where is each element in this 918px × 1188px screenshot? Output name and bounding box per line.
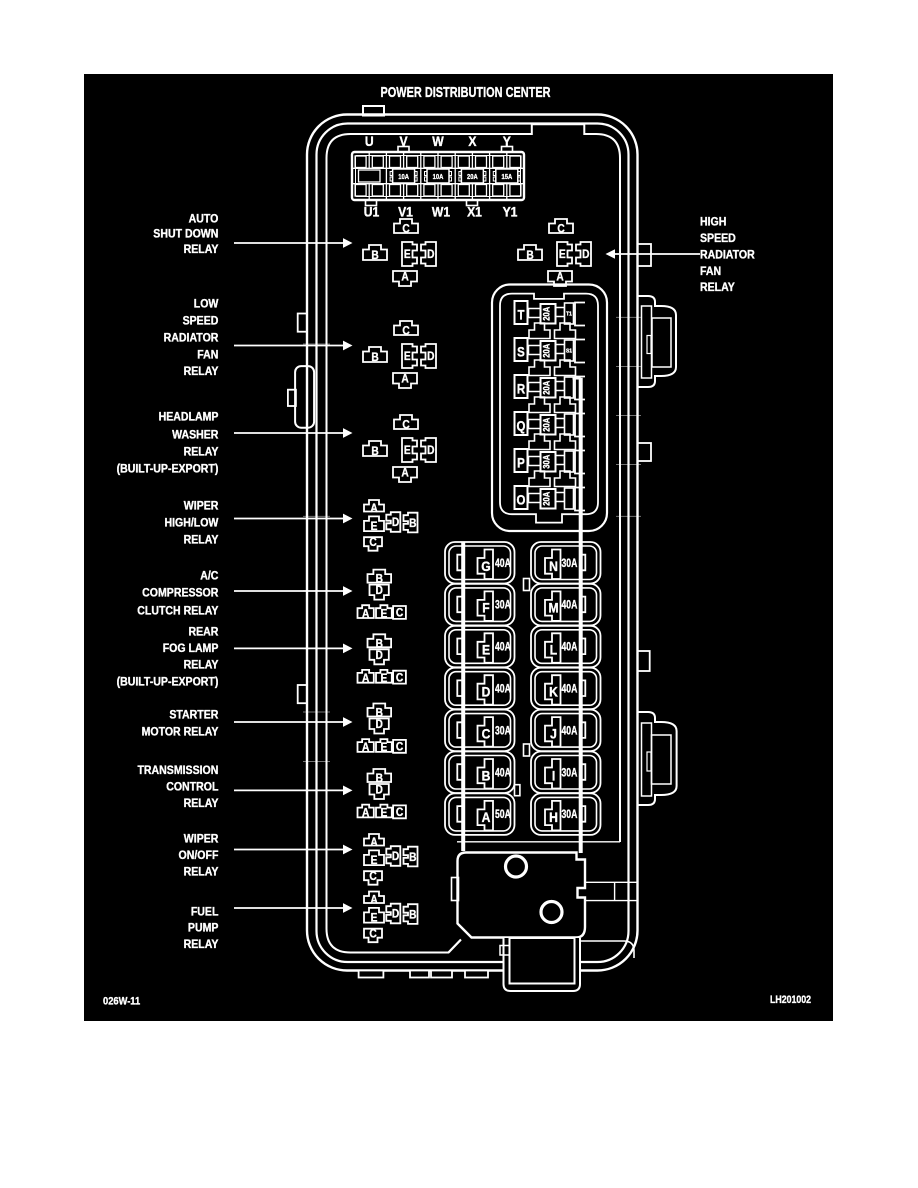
svg-text:G: G xyxy=(481,558,490,574)
svg-text:D: D xyxy=(582,249,589,262)
svg-text:30A: 30A xyxy=(562,767,578,780)
svg-text:E: E xyxy=(371,912,378,925)
svg-text:C: C xyxy=(557,223,564,236)
svg-text:S1: S1 xyxy=(566,348,572,354)
svg-text:K: K xyxy=(549,684,558,700)
svg-text:T: T xyxy=(517,308,524,323)
svg-text:20A: 20A xyxy=(541,418,552,432)
svg-text:C: C xyxy=(396,741,403,754)
svg-text:WASHER: WASHER xyxy=(172,429,218,442)
svg-text:E: E xyxy=(371,855,378,868)
svg-text:40A: 40A xyxy=(562,600,578,613)
svg-text:H: H xyxy=(549,810,558,826)
svg-text:P: P xyxy=(517,456,525,471)
svg-text:SHUT DOWN: SHUT DOWN xyxy=(153,228,218,241)
svg-text:RADIATOR: RADIATOR xyxy=(700,249,755,262)
svg-text:C: C xyxy=(396,806,403,819)
svg-text:RELAY: RELAY xyxy=(184,939,219,952)
svg-text:J: J xyxy=(550,726,557,742)
svg-text:B: B xyxy=(409,909,416,922)
svg-text:AUTO: AUTO xyxy=(189,213,219,226)
svg-text:10A: 10A xyxy=(398,173,409,181)
svg-text:SPEED: SPEED xyxy=(700,232,736,245)
svg-text:D: D xyxy=(427,351,434,364)
svg-text:COMPRESSOR: COMPRESSOR xyxy=(142,587,218,600)
svg-text:C: C xyxy=(369,870,376,883)
svg-text:STARTER: STARTER xyxy=(169,709,218,722)
svg-text:C: C xyxy=(402,325,409,338)
svg-text:HEADLAMP: HEADLAMP xyxy=(159,411,219,424)
svg-text:D: D xyxy=(482,684,491,700)
svg-text:RELAY: RELAY xyxy=(184,534,219,547)
svg-text:MOTOR RELAY: MOTOR RELAY xyxy=(142,726,219,739)
svg-text:LOW: LOW xyxy=(194,298,219,311)
svg-text:E: E xyxy=(381,672,388,685)
svg-text:20A: 20A xyxy=(541,492,552,506)
svg-text:40A: 40A xyxy=(495,767,511,780)
svg-text:C: C xyxy=(369,536,376,549)
svg-text:FAN: FAN xyxy=(700,265,721,278)
svg-text:20A: 20A xyxy=(541,381,552,395)
svg-text:N: N xyxy=(549,558,558,574)
svg-text:D: D xyxy=(392,908,399,921)
svg-text:A: A xyxy=(370,837,377,850)
svg-text:FOG LAMP: FOG LAMP xyxy=(163,643,219,656)
svg-text:A: A xyxy=(401,271,408,284)
svg-text:B: B xyxy=(371,445,378,458)
svg-text:U: U xyxy=(365,133,374,149)
svg-text:V1: V1 xyxy=(398,204,413,220)
svg-text:F: F xyxy=(482,600,490,616)
svg-text:E: E xyxy=(482,642,491,658)
svg-text:E: E xyxy=(381,807,388,820)
svg-text:C: C xyxy=(402,223,409,236)
svg-text:026W-11: 026W-11 xyxy=(103,996,140,1008)
svg-text:FAN: FAN xyxy=(197,349,218,362)
svg-text:SPEED: SPEED xyxy=(183,315,219,328)
svg-text:30A: 30A xyxy=(562,558,578,571)
svg-text:RELAY: RELAY xyxy=(184,659,219,672)
svg-text:D: D xyxy=(375,718,382,731)
svg-text:TRANSMISSION: TRANSMISSION xyxy=(137,765,218,778)
svg-text:RELAY: RELAY xyxy=(700,282,735,295)
svg-text:D: D xyxy=(375,584,382,597)
svg-text:LH201002: LH201002 xyxy=(770,994,811,1006)
svg-text:R: R xyxy=(517,382,525,397)
svg-text:C: C xyxy=(396,672,403,685)
svg-text:U1: U1 xyxy=(364,204,380,220)
svg-text:C: C xyxy=(402,419,409,432)
svg-text:B: B xyxy=(371,249,378,262)
svg-text:20A: 20A xyxy=(541,344,552,358)
svg-text:A/C: A/C xyxy=(200,570,218,583)
svg-text:A: A xyxy=(401,467,408,480)
svg-text:T1: T1 xyxy=(566,311,572,317)
svg-text:D: D xyxy=(427,445,434,458)
svg-text:X1: X1 xyxy=(467,204,482,220)
svg-text:I: I xyxy=(552,768,555,784)
svg-text:C: C xyxy=(369,928,376,941)
svg-text:(BUILT-UP-EXPORT): (BUILT-UP-EXPORT) xyxy=(117,463,219,476)
svg-text:CLUTCH RELAY: CLUTCH RELAY xyxy=(137,605,219,618)
svg-text:B: B xyxy=(482,768,491,784)
svg-text:C: C xyxy=(396,607,403,620)
svg-text:40A: 40A xyxy=(562,725,578,738)
svg-text:RELAY: RELAY xyxy=(184,243,219,256)
svg-text:40A: 40A xyxy=(495,641,511,654)
svg-text:A: A xyxy=(362,608,369,621)
svg-text:B: B xyxy=(409,517,416,530)
svg-text:D: D xyxy=(375,784,382,797)
svg-text:D: D xyxy=(392,851,399,864)
svg-text:E: E xyxy=(371,521,378,534)
svg-text:A: A xyxy=(482,810,491,826)
svg-text:Y1: Y1 xyxy=(503,204,518,220)
svg-text:HIGH: HIGH xyxy=(700,216,726,229)
svg-text:A: A xyxy=(370,894,377,907)
svg-text:A: A xyxy=(362,807,369,820)
svg-text:C: C xyxy=(482,726,491,742)
svg-text:B: B xyxy=(409,851,416,864)
svg-text:L: L xyxy=(550,642,558,658)
svg-text:REAR: REAR xyxy=(188,626,218,639)
svg-text:15A: 15A xyxy=(501,173,512,181)
svg-text:RELAY: RELAY xyxy=(184,866,219,879)
svg-text:30A: 30A xyxy=(495,600,511,613)
svg-text:40A: 40A xyxy=(495,558,511,571)
svg-text:(BUILT-UP-EXPORT): (BUILT-UP-EXPORT) xyxy=(117,676,219,689)
svg-text:E: E xyxy=(404,249,411,262)
svg-text:W1: W1 xyxy=(432,204,450,220)
svg-text:A: A xyxy=(362,742,369,755)
svg-text:A: A xyxy=(401,373,408,386)
svg-text:30A: 30A xyxy=(495,725,511,738)
svg-text:M: M xyxy=(548,600,558,616)
svg-text:A: A xyxy=(370,503,377,516)
svg-text:HIGH/LOW: HIGH/LOW xyxy=(164,517,218,530)
svg-text:X: X xyxy=(468,133,477,149)
svg-text:E: E xyxy=(404,445,411,458)
svg-text:FUEL: FUEL xyxy=(191,906,219,919)
svg-text:E: E xyxy=(381,608,388,621)
svg-text:10A: 10A xyxy=(433,173,444,181)
svg-text:30A: 30A xyxy=(562,809,578,822)
svg-text:B: B xyxy=(371,351,378,364)
svg-text:CONTROL: CONTROL xyxy=(166,781,218,794)
svg-text:E: E xyxy=(559,249,566,262)
svg-text:A: A xyxy=(362,672,369,685)
svg-text:RELAY: RELAY xyxy=(184,366,219,379)
svg-text:30A: 30A xyxy=(541,455,552,469)
svg-text:O: O xyxy=(517,493,526,508)
svg-text:40A: 40A xyxy=(495,683,511,696)
svg-text:A: A xyxy=(556,271,563,284)
svg-text:RELAY: RELAY xyxy=(184,446,219,459)
svg-text:S: S xyxy=(517,345,525,360)
svg-text:RADIATOR: RADIATOR xyxy=(164,332,219,345)
svg-text:D: D xyxy=(427,249,434,262)
svg-text:RELAY: RELAY xyxy=(184,797,219,810)
svg-text:WIPER: WIPER xyxy=(184,500,219,513)
svg-text:B: B xyxy=(526,249,533,262)
svg-text:20A: 20A xyxy=(467,173,478,181)
svg-text:ON/OFF: ON/OFF xyxy=(179,850,219,863)
svg-text:50A: 50A xyxy=(495,809,511,822)
svg-text:D: D xyxy=(392,517,399,530)
svg-text:Y: Y xyxy=(503,133,512,149)
svg-text:E: E xyxy=(404,351,411,364)
svg-text:40A: 40A xyxy=(562,641,578,654)
svg-text:40A: 40A xyxy=(562,683,578,696)
svg-text:D: D xyxy=(375,649,382,662)
svg-text:20A: 20A xyxy=(541,307,552,321)
svg-text:WIPER: WIPER xyxy=(184,833,219,846)
svg-text:V: V xyxy=(400,133,409,149)
svg-text:Q: Q xyxy=(517,419,526,434)
svg-text:PUMP: PUMP xyxy=(188,922,219,935)
svg-text:E: E xyxy=(381,742,388,755)
svg-text:W: W xyxy=(432,133,444,149)
svg-text:POWER DISTRIBUTION CENTER: POWER DISTRIBUTION CENTER xyxy=(381,84,551,101)
